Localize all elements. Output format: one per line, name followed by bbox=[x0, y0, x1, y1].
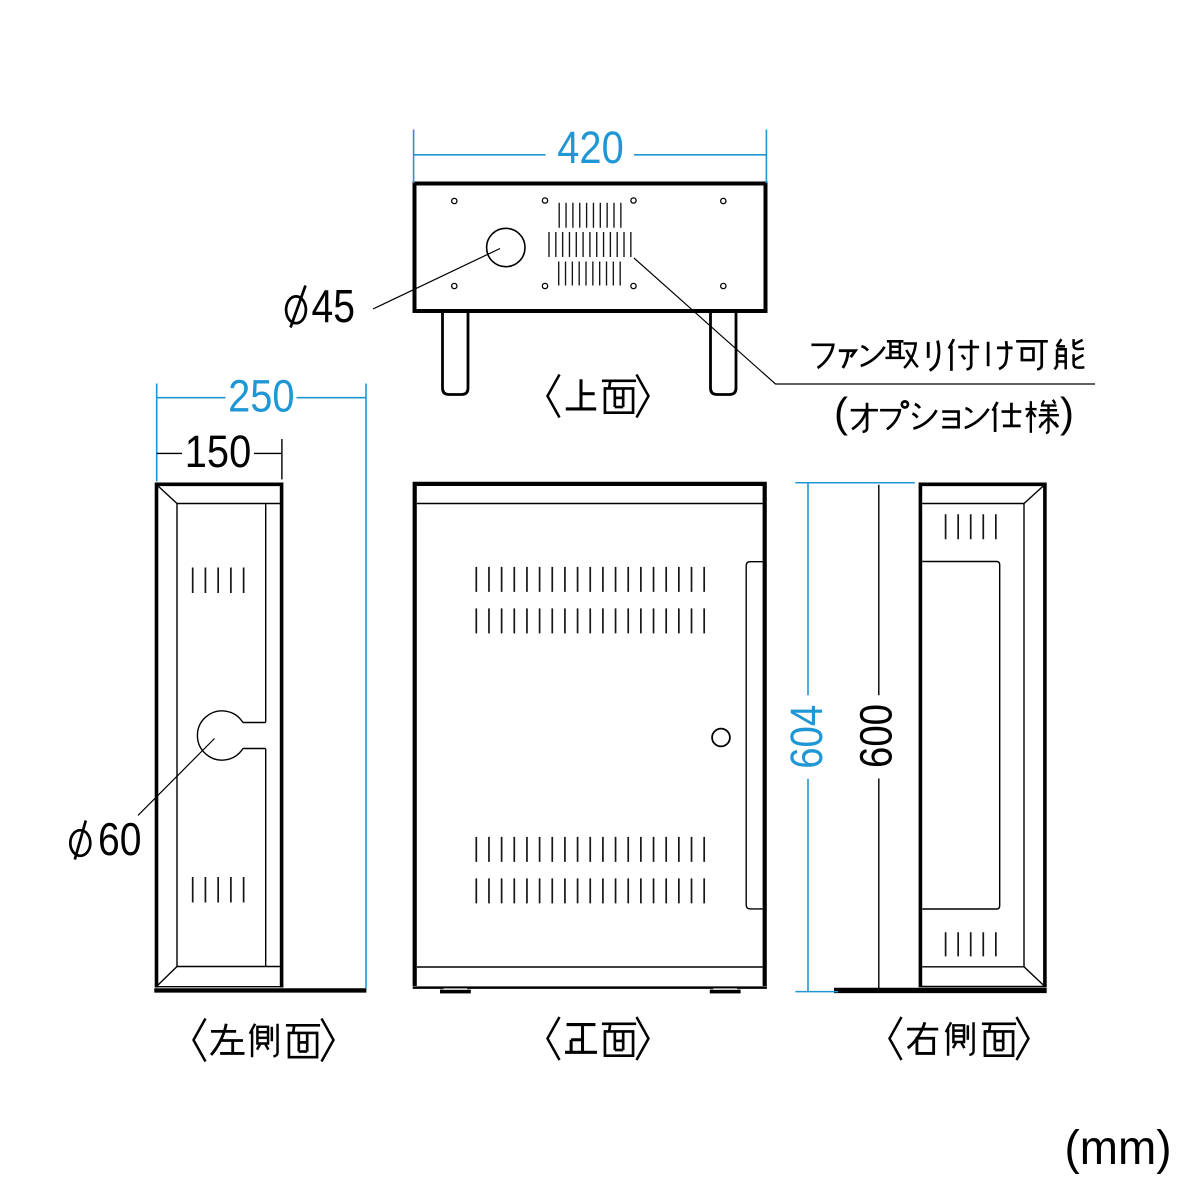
svg-text:): ) bbox=[1060, 389, 1074, 436]
svg-text:250: 250 bbox=[228, 371, 294, 422]
svg-text:60: 60 bbox=[98, 814, 141, 866]
svg-text:600: 600 bbox=[850, 704, 901, 768]
svg-text:45: 45 bbox=[312, 281, 355, 333]
svg-text:(mm): (mm) bbox=[1065, 1120, 1172, 1174]
svg-text:150: 150 bbox=[185, 427, 251, 478]
svg-text:604: 604 bbox=[781, 705, 832, 769]
svg-text:(: ( bbox=[834, 389, 848, 436]
svg-text:420: 420 bbox=[557, 123, 623, 174]
